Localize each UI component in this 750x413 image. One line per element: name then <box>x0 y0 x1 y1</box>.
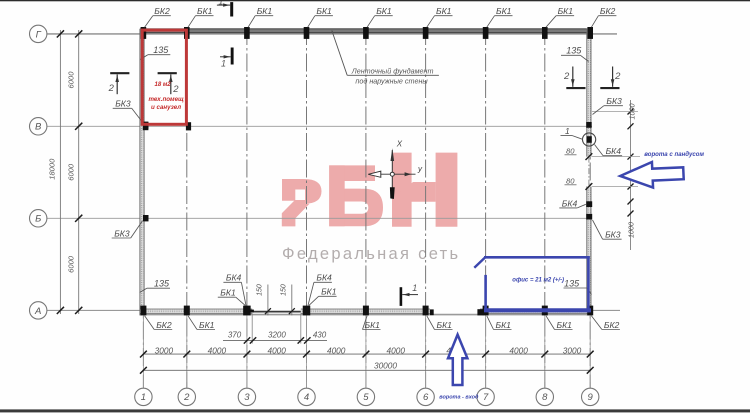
svg-text:БК1: БК1 <box>197 6 213 16</box>
svg-text:А: А <box>34 306 41 317</box>
svg-text:1: 1 <box>221 59 226 69</box>
svg-text:1: 1 <box>565 126 570 136</box>
svg-text:6: 6 <box>423 392 429 403</box>
svg-text:150: 150 <box>257 284 264 296</box>
svg-text:БК1: БК1 <box>496 6 512 16</box>
svg-text:1000: 1000 <box>627 222 636 238</box>
svg-text:135: 135 <box>566 46 582 56</box>
svg-text:БК2: БК2 <box>604 320 620 330</box>
svg-text:БК4: БК4 <box>606 146 622 156</box>
svg-text:5: 5 <box>363 392 369 403</box>
svg-text:БК3: БК3 <box>605 230 621 240</box>
svg-text:4: 4 <box>304 392 309 403</box>
svg-text:2: 2 <box>563 71 570 82</box>
svg-text:6000: 6000 <box>67 71 76 89</box>
svg-text:80: 80 <box>566 146 575 155</box>
svg-text:135: 135 <box>154 279 170 289</box>
svg-text:БК1: БК1 <box>496 320 512 330</box>
svg-text:БК1: БК1 <box>558 6 574 16</box>
svg-text:8: 8 <box>542 392 548 403</box>
svg-text:тех.помещ: тех.помещ <box>149 96 185 103</box>
svg-text:БК1: БК1 <box>316 6 332 16</box>
svg-text:БК2: БК2 <box>156 320 172 330</box>
svg-text:БК1: БК1 <box>321 287 337 297</box>
svg-text:4000: 4000 <box>509 346 528 356</box>
svg-text:офис = 21 м2 (+/-): офис = 21 м2 (+/-) <box>512 276 564 283</box>
svg-text:и санузел: и санузел <box>151 104 181 111</box>
svg-text:БК4: БК4 <box>316 273 332 283</box>
svg-text:БК1: БК1 <box>376 6 392 16</box>
svg-text:7: 7 <box>483 392 489 403</box>
svg-text:1: 1 <box>412 283 417 293</box>
svg-text:1: 1 <box>141 392 146 403</box>
svg-text:В: В <box>35 122 42 133</box>
svg-text:3: 3 <box>244 392 250 403</box>
svg-text:9: 9 <box>588 392 594 403</box>
svg-text:БК4: БК4 <box>226 273 242 283</box>
svg-text:430: 430 <box>313 330 327 339</box>
svg-text:18000: 18000 <box>48 158 57 180</box>
svg-text:4000: 4000 <box>208 346 227 356</box>
svg-text:3000: 3000 <box>155 346 174 356</box>
svg-text:80: 80 <box>566 176 575 185</box>
svg-text:БК1: БК1 <box>257 6 273 16</box>
svg-text:4000: 4000 <box>387 346 406 356</box>
svg-text:под наружные стены: под наружные стены <box>355 77 428 86</box>
svg-text:6000: 6000 <box>67 163 76 181</box>
svg-text:2: 2 <box>172 84 179 95</box>
svg-text:3200: 3200 <box>268 330 286 339</box>
svg-text:135: 135 <box>153 45 169 55</box>
svg-text:2: 2 <box>614 71 621 82</box>
svg-text:4000: 4000 <box>327 346 346 356</box>
svg-text:6000: 6000 <box>67 255 76 273</box>
svg-text:БК4: БК4 <box>562 198 578 208</box>
svg-text:X: X <box>396 140 403 149</box>
svg-text:БК1: БК1 <box>365 320 381 330</box>
svg-text:150: 150 <box>281 284 288 296</box>
svg-text:БК1: БК1 <box>199 320 215 330</box>
svg-text:Федеральная сеть: Федеральная сеть <box>282 245 460 263</box>
svg-text:3000: 3000 <box>563 346 582 356</box>
svg-text:БК3: БК3 <box>114 228 130 238</box>
svg-text:ворота с пандусом: ворота с пандусом <box>644 151 704 158</box>
svg-text:30000: 30000 <box>374 361 397 371</box>
svg-text:370: 370 <box>228 330 242 339</box>
svg-text:БК3: БК3 <box>606 96 622 106</box>
svg-text:Ленточный фундамент: Ленточный фундамент <box>351 67 434 76</box>
svg-text:БК3: БК3 <box>115 99 131 109</box>
svg-text:БК1: БК1 <box>436 6 452 16</box>
svg-text:БК1: БК1 <box>557 320 573 330</box>
svg-text:2: 2 <box>183 392 190 403</box>
svg-text:Б: Б <box>35 214 41 225</box>
svg-text:БК1: БК1 <box>437 320 453 330</box>
svg-text:Г: Г <box>36 29 42 40</box>
svg-text:БК1: БК1 <box>220 288 236 298</box>
svg-text:2: 2 <box>108 83 115 94</box>
svg-text:ворота - вход: ворота - вход <box>439 395 479 401</box>
svg-text:135: 135 <box>564 278 580 288</box>
svg-text:БК2: БК2 <box>154 6 170 16</box>
svg-text:1000: 1000 <box>628 104 637 120</box>
svg-text:БК2: БК2 <box>600 6 616 16</box>
svg-text:18 м2: 18 м2 <box>155 82 172 88</box>
svg-text:4000: 4000 <box>267 346 286 356</box>
